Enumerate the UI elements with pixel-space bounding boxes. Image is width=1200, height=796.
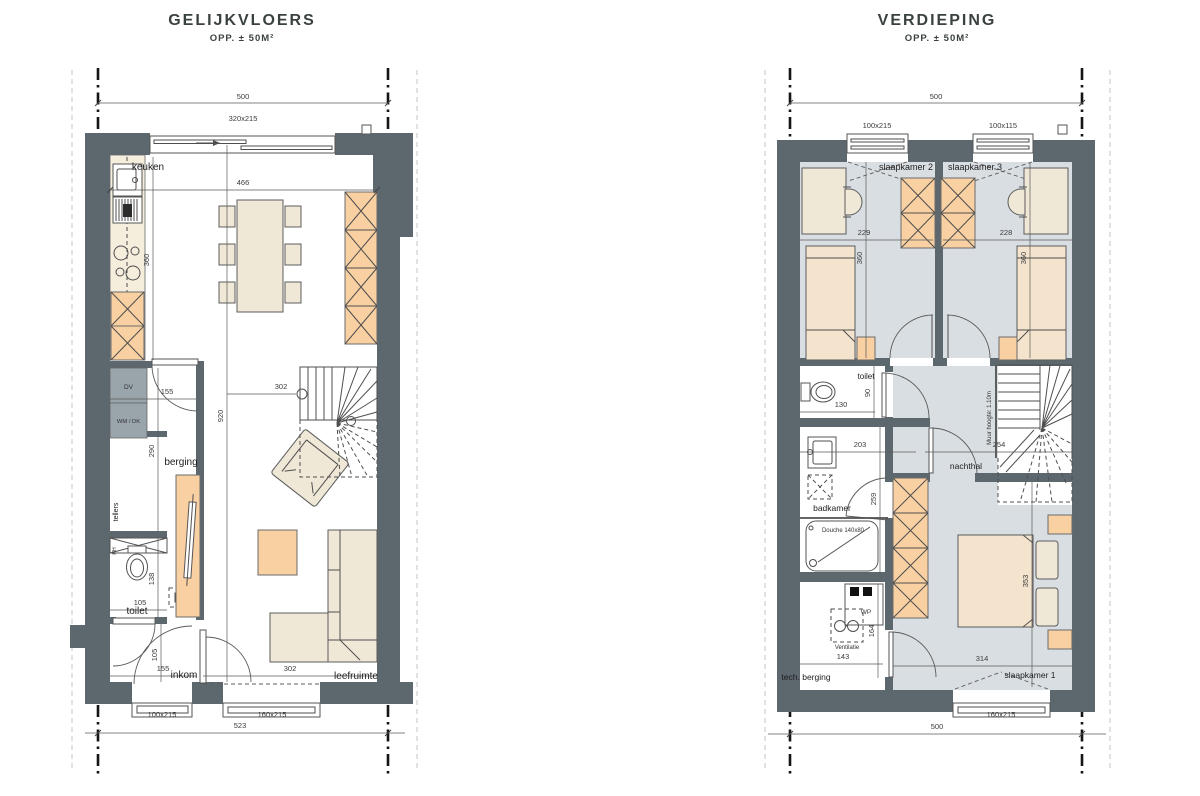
dim-interior-depth: 920 (216, 410, 225, 423)
side-table (258, 530, 297, 575)
dim-inkom-width: 155 (157, 664, 170, 673)
room-label-tech-berging: tech. berging (781, 672, 830, 682)
dim-toilet-depth-l: 138 (147, 573, 156, 586)
room-label-keuken: keuken (132, 162, 164, 173)
dim-living-width: 302 (284, 664, 297, 673)
left-plan: DV WM / DK HH (70, 68, 417, 775)
hh-label: HH (112, 547, 118, 555)
room-label-toilet-r: toilet (858, 372, 876, 381)
heat-pump-icon (845, 584, 883, 625)
ventilatie-label: Ventilatie (835, 645, 860, 651)
dim-sk1-width: 314 (976, 654, 989, 663)
dim-toilet-width-r: 130 (835, 400, 848, 409)
toilet-wc-icon (127, 546, 148, 580)
dim-sk2-width: 229 (858, 228, 871, 237)
floorplan-canvas: GELIJKVLOERS OPP. ± 50M² VERDIEPING OPP.… (0, 0, 1200, 796)
door-badkamer (846, 478, 888, 520)
wp-label: WP (861, 609, 871, 616)
sliding-window-top (150, 136, 335, 153)
dim-total-bottom-right: 500 (931, 722, 944, 731)
shower-label: Douche 140x80 (822, 528, 865, 534)
dim-kitchen-depth: 360 (142, 254, 151, 267)
berging-door (152, 359, 198, 411)
dim-badkamer-depth: 259 (869, 493, 878, 506)
dim-toilet-depth-r: 90 (863, 389, 872, 397)
right-plan: Douche 140x80 WP Ventilatie (765, 68, 1110, 775)
inkom-living-door (200, 630, 251, 683)
dim-door-front: 100x215 (148, 710, 177, 719)
dim-sk3-width: 228 (1000, 228, 1013, 237)
dim-badkamer-width: 203 (854, 440, 867, 449)
tv-cabinet (176, 475, 200, 617)
room-label-slaapkamer2: slaapkamer 2 (879, 162, 933, 172)
dim-window-sk1: 160x215 (987, 710, 1016, 719)
room-label-leefruimte: leefruimte (334, 671, 378, 682)
wm-dk-label: WM / DK (117, 419, 140, 425)
toilet-wc-icon-r (801, 382, 835, 402)
kitchen-counter (110, 155, 145, 360)
dim-berging-depth: 290 (147, 445, 156, 458)
dim-total-bottom-left: 523 (234, 721, 247, 730)
room-label-inkom: inkom (171, 670, 198, 681)
dim-interior-width: 466 (237, 178, 250, 187)
reserved-fixture-icon (808, 475, 832, 499)
knee-wall-label: Muur hoogte: 1.10m (987, 391, 993, 445)
dim-window-sk2: 100x215 (863, 121, 892, 130)
level-marker-icon (297, 389, 307, 399)
dv-label: DV (124, 384, 134, 391)
dim-window-living: 160x215 (258, 710, 287, 719)
room-label-slaapkamer1: slaapkamer 1 (1004, 670, 1055, 680)
furniture-left (219, 192, 377, 662)
kitchen-cabinet (111, 292, 144, 360)
dim-sk3-depth: 360 (1019, 252, 1028, 265)
dim-tech-depth: 164 (867, 625, 876, 638)
dim-tech-width: 143 (837, 652, 850, 661)
dim-sk1-depth: 353 (1021, 575, 1030, 588)
room-label-slaapkamer3: slaapkamer 3 (948, 162, 1002, 172)
room-label-berging: berging (164, 457, 197, 468)
room-label-badkamer: badkamer (813, 503, 851, 513)
room-label-toilet-l: toilet (126, 606, 147, 617)
dim-inkom-height: 105 (150, 649, 159, 662)
floorplan-drawing: DV WM / DK HH (0, 0, 1200, 796)
tall-cabinet-right (345, 192, 377, 344)
room-label-tellers: tellers (113, 502, 120, 521)
wardrobe-sk1 (893, 478, 928, 618)
dim-berging-width: 155 (161, 387, 174, 396)
rainwater-pipe-icon-2 (1058, 125, 1067, 134)
wardrobe-sk2 (901, 178, 935, 248)
dim-total-top-left: 500 (237, 92, 250, 101)
dim-stair-level: 302 (275, 382, 288, 391)
dim-nachthal-width: 254 (993, 440, 1006, 449)
dim-window-top: 320x215 (229, 114, 258, 123)
washbasin-icon (808, 437, 837, 468)
toilet-door (113, 618, 155, 666)
dim-total-top-right: 500 (930, 92, 943, 101)
dim-sk2-depth: 360 (855, 252, 864, 265)
dining-table (219, 200, 301, 312)
dim-window-sk3: 100x115 (989, 121, 1017, 130)
rainwater-pipe-icon (362, 125, 371, 134)
room-label-nachthal: nachthal (950, 461, 982, 471)
wardrobe-sk3 (941, 178, 975, 248)
